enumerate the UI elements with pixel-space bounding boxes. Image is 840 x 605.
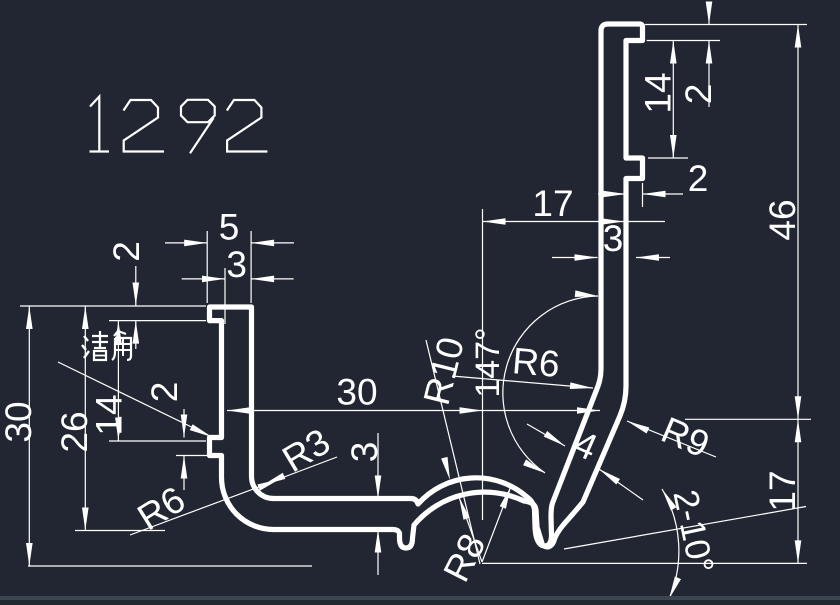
svg-text:5: 5 bbox=[219, 207, 240, 248]
svg-text:R6: R6 bbox=[511, 340, 562, 385]
svg-text:46: 46 bbox=[762, 199, 803, 240]
svg-text:3: 3 bbox=[226, 244, 247, 285]
svg-text:30: 30 bbox=[336, 372, 377, 413]
svg-text:2: 2 bbox=[678, 84, 719, 105]
svg-text:3: 3 bbox=[603, 218, 624, 259]
svg-text:14: 14 bbox=[638, 72, 679, 113]
svg-text:17: 17 bbox=[762, 470, 803, 511]
svg-text:2: 2 bbox=[144, 382, 185, 403]
svg-text:14: 14 bbox=[89, 394, 130, 435]
svg-text:2: 2 bbox=[106, 241, 147, 262]
svg-text:2: 2 bbox=[688, 158, 709, 199]
svg-text:17: 17 bbox=[532, 183, 573, 224]
svg-text:3: 3 bbox=[344, 442, 385, 463]
svg-text:147°: 147° bbox=[469, 327, 507, 397]
svg-text:30: 30 bbox=[0, 401, 39, 442]
